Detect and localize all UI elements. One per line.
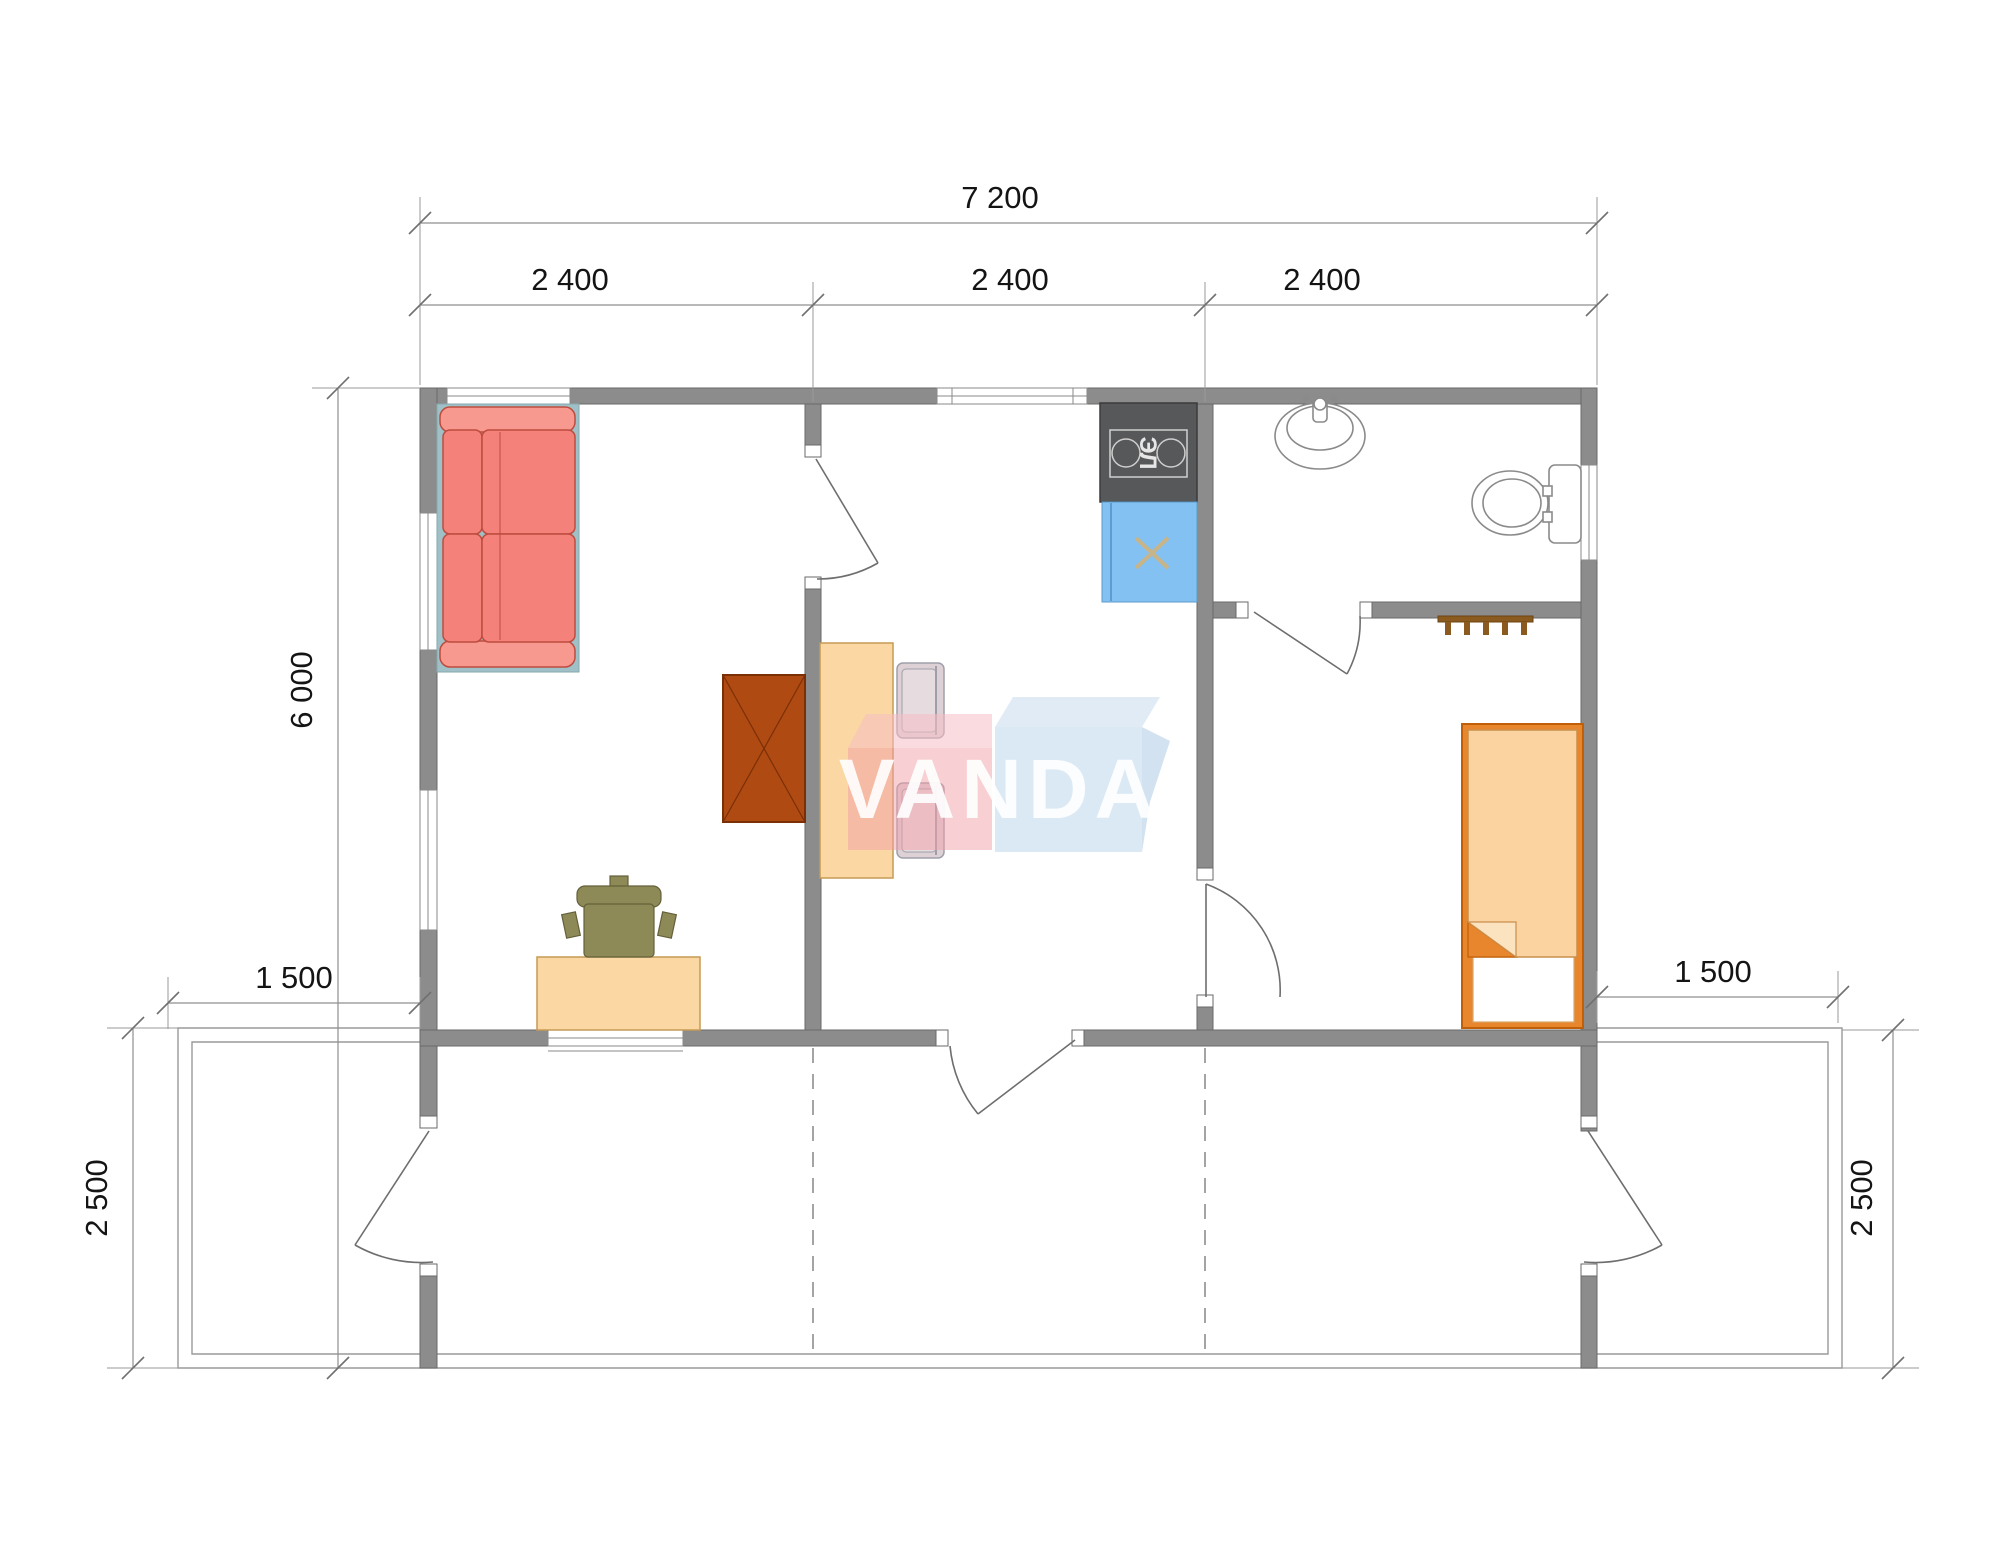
svg-text:2 400: 2 400	[1283, 262, 1361, 297]
vanda-watermark: VANDA	[839, 697, 1170, 852]
bed	[1462, 724, 1583, 1028]
toilet	[1472, 465, 1581, 543]
wardrobe	[723, 675, 805, 822]
svg-text:2 500: 2 500	[1844, 1159, 1879, 1237]
window-kitchen-top	[937, 388, 1087, 404]
svg-text:2 500: 2 500	[79, 1159, 114, 1237]
bathroom-sink	[1275, 395, 1365, 469]
stove-label: ЭЛ	[1134, 437, 1161, 470]
dim-terrace-offset-left: 1 500	[157, 960, 431, 1029]
stove: ЭЛ	[1100, 403, 1197, 502]
dim-terrace-depth-left: 2 500	[79, 1017, 159, 1379]
svg-text:1 500: 1 500	[1674, 954, 1752, 989]
kitchen-sink	[1102, 502, 1197, 602]
desk	[537, 957, 700, 1030]
walls	[420, 388, 1597, 1368]
dim-modules: 2 400 2 400 2 400	[409, 262, 1608, 331]
window-living-bottom	[548, 1030, 683, 1051]
door-bedroom	[1197, 868, 1280, 1007]
door-terrace-left	[355, 1116, 437, 1276]
window-living-left-lower	[420, 790, 437, 930]
dim-terrace-depth-right: 2 500	[1844, 1019, 1919, 1379]
door-bathroom	[1236, 602, 1372, 674]
dim-terrace-offset-right: 1 500	[1586, 954, 1849, 1023]
door-living-room	[805, 445, 878, 589]
window-bathroom-right	[1581, 465, 1597, 560]
svg-text:1 500: 1 500	[255, 960, 333, 995]
sofa	[437, 404, 579, 672]
desk-chair	[562, 876, 677, 957]
dim-total-depth: 6 000	[284, 377, 364, 1379]
door-terrace-right	[1581, 1116, 1662, 1276]
door-entrance	[936, 1030, 1084, 1114]
svg-text:7 200: 7 200	[961, 180, 1039, 215]
floor-plan-canvas: ЭЛ	[0, 0, 2000, 1563]
svg-text:6 000: 6 000	[284, 651, 319, 729]
vanda-logo-text: VANDA	[839, 742, 1161, 836]
coat-hooks	[1438, 616, 1533, 635]
svg-text:2 400: 2 400	[971, 262, 1049, 297]
window-living-top	[447, 388, 570, 404]
window-living-left-upper	[420, 513, 437, 650]
svg-text:2 400: 2 400	[531, 262, 609, 297]
dim-total-width: 7 200	[409, 180, 1608, 249]
